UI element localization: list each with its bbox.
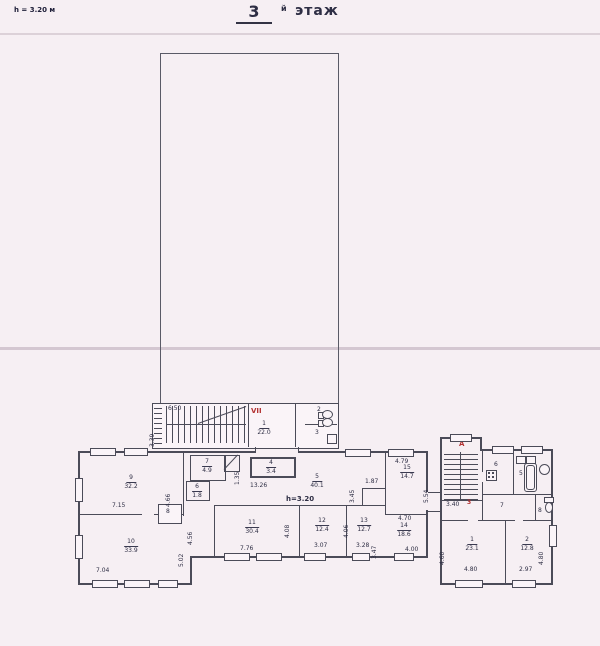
window-symbol [92,580,118,588]
wall [362,488,385,489]
window-symbol [304,553,326,561]
room-8-walls [158,504,182,524]
height-note: h=3.20 [286,495,314,503]
room-area: 14.7 [400,473,414,481]
sink-icon [327,434,337,444]
dim-label: 7.76 [240,545,253,552]
window-symbol [345,449,371,457]
dim-label: 3.47 [371,546,378,559]
red-mark: 3 [467,499,471,506]
heater-icon [539,464,550,475]
room-area: 12.4 [315,526,329,534]
room-area: 23.1 [465,545,478,553]
doorway [482,472,483,482]
room-number: 1 [259,420,269,429]
dim-label: 3.39 [149,434,156,447]
room-number: 1 [467,536,477,545]
wall [482,449,483,520]
room-number: 8 [538,507,542,514]
toilet-icon [545,502,553,513]
window-symbol [521,446,543,454]
room-number: 15 [400,464,414,473]
room-number: 5 [312,473,322,482]
floor-number: 3 [236,2,272,24]
room-number: 7 [202,458,212,467]
window-symbol [549,525,557,547]
wall [505,520,506,583]
doorway [256,451,298,453]
dim-label: 3.07 [314,542,327,549]
wall [299,505,300,556]
stair-section-label: VII [251,407,262,415]
wall [248,403,249,447]
window-symbol [352,553,370,561]
room-number: 5 [519,470,523,477]
room-number: 12 [315,517,329,526]
doorway [142,514,154,515]
room-area: 40.1 [310,482,323,490]
room-number: 2 [522,536,532,545]
window-symbol [124,580,150,588]
room-area: 12.7 [357,526,371,534]
wall [482,494,553,495]
toilet-icon [322,418,333,427]
window-symbol [388,449,414,457]
dim-label: 4.56 [187,532,194,545]
room-label: 12 12.4 [315,517,329,533]
window-symbol [75,478,83,502]
dim-label: 7.04 [96,567,109,574]
room-number: 4 [266,459,276,468]
exterior-wall [78,451,80,585]
dim-label: 4.08 [284,525,291,538]
ceiling-height-note: h = 3.20 м [14,6,55,14]
dim-label: 3.40 [446,501,459,508]
window-symbol [394,553,414,561]
room-area: 22.0 [257,429,270,437]
window-symbol [455,580,483,588]
room-area: 33.9 [124,547,138,555]
room-label: 10 33.9 [124,538,138,554]
window-symbol [450,434,472,442]
wall [513,452,514,494]
room-number: 9 [126,474,136,483]
room-label: 14 18.6 [397,522,411,538]
exterior-wall [190,556,192,585]
doorway [515,520,523,521]
room-number: 8 [166,508,170,515]
room-label: 5 40.1 [310,473,323,489]
wall [214,505,215,556]
window-symbol [256,553,282,561]
dim-label: 4.00 [405,546,418,553]
room-label: 7 4.9 [202,458,212,474]
room-area: 12.8 [520,545,533,553]
room-label: 13 12.7 [357,517,371,533]
window-symbol [158,580,178,588]
window-symbol [512,580,536,588]
dim-label: 6.50 [168,405,181,412]
dim-label: 2.97 [519,566,532,573]
room-area: 3.4 [266,468,276,476]
room-number: 13 [357,517,371,526]
wall [295,403,296,447]
room-area: 1.8 [192,492,202,500]
doorway [468,520,478,521]
room-number: 14 [397,522,411,531]
dim-label: 13.26 [250,482,267,489]
dim-label: 5.54 [423,490,430,503]
dim-label: 1.87 [365,478,378,485]
dim-label: 3.28 [356,542,369,549]
dim-label: 4.06 [343,525,350,538]
closet-walls [224,455,240,472]
room-area: 32.2 [124,483,137,491]
room-area: 30.4 [245,528,259,536]
room-number: 3 [315,429,319,436]
window-symbol [75,535,83,559]
room-number: 6 [192,483,202,492]
wall [385,453,386,514]
dim-label: 4.80 [464,566,477,573]
room-number: 7 [500,502,504,509]
room-number: 11 [245,519,259,528]
bathtub-inner [526,465,535,490]
room-area: 4.9 [202,467,212,475]
room-number: 6 [494,461,498,468]
room-label: 1 23.1 [465,536,478,552]
wall [362,488,363,505]
stair-center-line [460,452,461,500]
wall [535,494,536,520]
dim-label: 4.79 [395,458,408,465]
dim-label: 5.02 [178,554,185,567]
room-label: 2 12.8 [520,536,533,552]
dim-label: 4.80 [538,552,545,565]
room-number: 10 [124,538,138,547]
room-label: 15 14.7 [400,464,414,480]
wall [183,453,184,516]
dim-label: 4.70 [398,515,411,522]
floor-word: этаж [295,3,339,19]
dim-label: 4.60 [439,552,446,565]
dim-label: 4.66 [165,494,172,507]
window-symbol [492,446,514,454]
room-label: 1 22.0 [257,420,270,436]
wall [440,520,553,521]
scan-artifact [0,33,600,35]
room-label: 9 32.2 [124,474,137,490]
dim-label: 3.45 [349,490,356,503]
window-symbol [124,448,148,456]
room-label: 11 30.4 [245,519,259,535]
room-label: 6 1.8 [192,483,202,499]
dim-label: 1.35 [234,472,241,485]
stove-burners-icon [488,472,490,474]
room-area: 18.6 [397,531,411,539]
window-symbol [224,553,250,561]
upper-building-outline [160,53,339,405]
stair-landing-line [166,424,246,425]
staircase-hatch [444,452,478,500]
floor-suffix: й [281,4,287,13]
dim-label: 7.15 [112,502,125,509]
room-label: 4 3.4 [266,459,276,475]
exterior-wall [551,449,553,585]
window-symbol [90,448,116,456]
